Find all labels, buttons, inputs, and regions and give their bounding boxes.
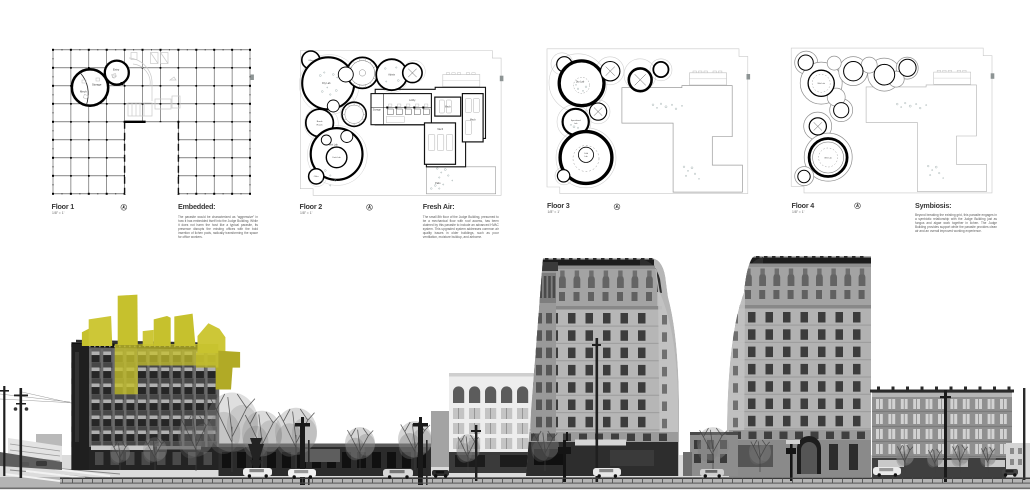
svg-text:Dark Lab: Dark Lab bbox=[333, 157, 342, 159]
svg-text:Admin: Admin bbox=[388, 74, 395, 77]
svg-text:Entry: Entry bbox=[113, 68, 120, 72]
svg-text:Specialized: Specialized bbox=[571, 120, 581, 122]
svg-text:Cold: Cold bbox=[584, 153, 588, 155]
svg-text:Lab: Lab bbox=[584, 156, 587, 158]
svg-text:Mech: Mech bbox=[80, 89, 87, 93]
svg-text:Office: Office bbox=[314, 176, 319, 178]
svg-text:Storage: Storage bbox=[373, 109, 382, 112]
svg-text:Wet Lab: Wet Lab bbox=[817, 82, 825, 85]
svg-text:Mech: Mech bbox=[437, 129, 443, 131]
svg-text:Room: Room bbox=[317, 124, 323, 126]
svg-text:Storage: Storage bbox=[92, 82, 102, 86]
svg-text:Wet Lab: Wet Lab bbox=[329, 144, 339, 147]
svg-text:Lab: Lab bbox=[574, 123, 577, 125]
svg-text:Mech: Mech bbox=[445, 107, 451, 109]
svg-text:Dry Lab: Dry Lab bbox=[322, 82, 331, 85]
svg-text:Break: Break bbox=[317, 120, 324, 123]
svg-text:Patio: Patio bbox=[435, 182, 441, 185]
svg-text:Wet Lab: Wet Lab bbox=[824, 156, 832, 159]
svg-text:Dry Lab: Dry Lab bbox=[576, 81, 585, 84]
svg-text:Lobby: Lobby bbox=[409, 100, 416, 102]
